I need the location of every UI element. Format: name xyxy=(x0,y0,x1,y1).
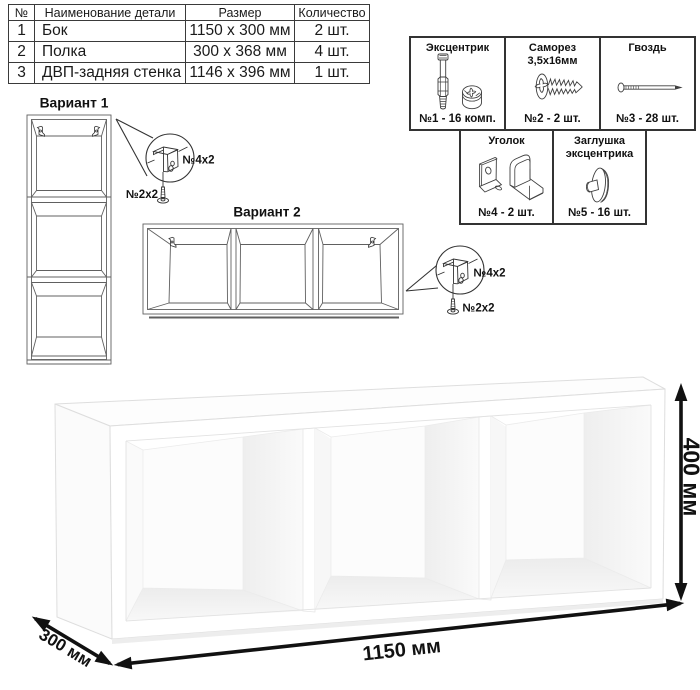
svg-text:№2х2: №2х2 xyxy=(126,189,158,201)
svg-text:400 мм: 400 мм xyxy=(679,438,700,517)
svg-text:1150 мм: 1150 мм xyxy=(362,635,442,665)
svg-text:№2х2: №2х2 xyxy=(463,303,495,315)
svg-text:Вариант 2: Вариант 2 xyxy=(233,205,300,220)
svg-text:Вариант 1: Вариант 1 xyxy=(40,96,109,111)
svg-text:№4х2: №4х2 xyxy=(183,155,215,167)
svg-text:№4х2: №4х2 xyxy=(474,268,506,280)
